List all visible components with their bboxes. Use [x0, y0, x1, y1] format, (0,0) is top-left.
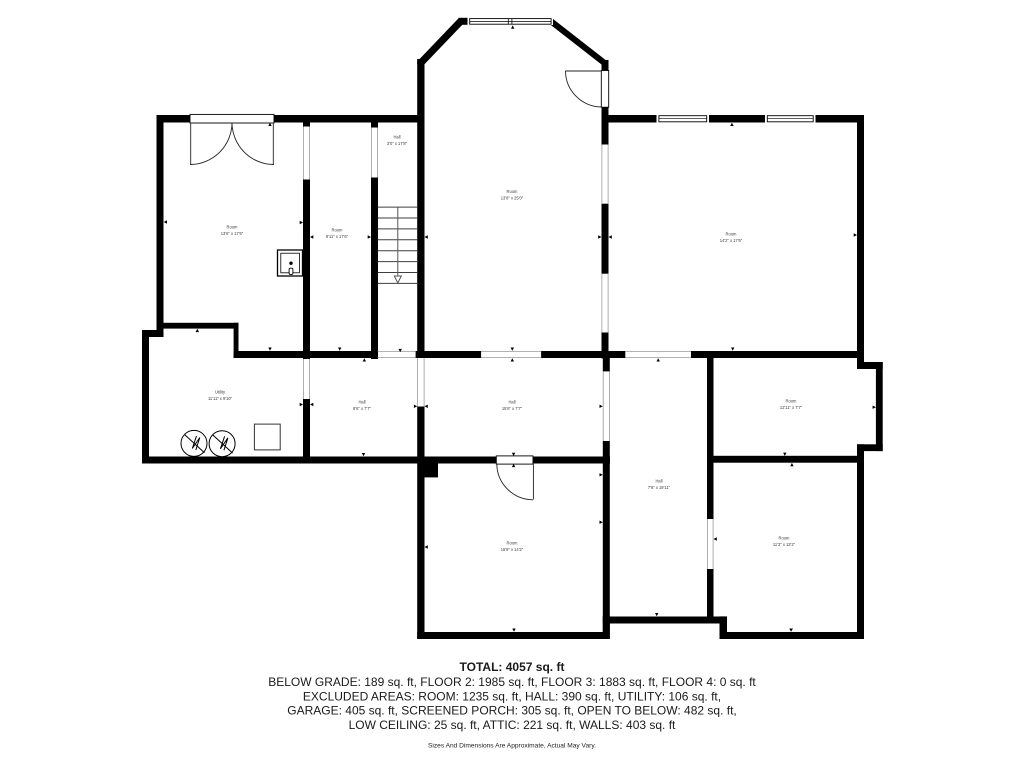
svg-text:13'6" x 17'6": 13'6" x 17'6" — [221, 231, 244, 236]
svg-text:3'0" x 17'8": 3'0" x 17'8" — [387, 141, 408, 146]
svg-text:Room: Room — [786, 399, 798, 404]
svg-text:Room: Room — [332, 228, 344, 233]
svg-text:13'8" x 25'0": 13'8" x 25'0" — [501, 196, 524, 201]
svg-text:LOW CEILING: 25 sq. ft, ATTIC:: LOW CEILING: 25 sq. ft, ATTIC: 221 sq. f… — [349, 718, 676, 732]
svg-text:8'11" x 17'6": 8'11" x 17'6" — [326, 234, 349, 239]
svg-text:Room: Room — [507, 541, 519, 546]
svg-text:Hall: Hall — [393, 135, 400, 140]
svg-text:7'8" x 19'11": 7'8" x 19'11" — [648, 485, 671, 490]
svg-text:15'9" x 14'2": 15'9" x 14'2" — [501, 547, 524, 552]
svg-text:12'11" x 7'7": 12'11" x 7'7" — [780, 405, 803, 410]
svg-text:Room: Room — [227, 225, 239, 230]
svg-text:EXCLUDED AREAS: ROOM: 1235 sq.: EXCLUDED AREAS: ROOM: 1235 sq. ft, HALL:… — [303, 690, 721, 704]
svg-text:Hall: Hall — [508, 400, 515, 405]
svg-text:TOTAL: 4057 sq. ft: TOTAL: 4057 sq. ft — [460, 660, 565, 674]
svg-text:BELOW GRADE: 189 sq. ft, FLOOR: BELOW GRADE: 189 sq. ft, FLOOR 2: 1985 s… — [268, 675, 756, 689]
svg-text:8'6" x 7'7": 8'6" x 7'7" — [353, 406, 371, 411]
svg-text:Room: Room — [507, 189, 519, 194]
svg-text:Hall: Hall — [655, 479, 662, 484]
svg-text:11'3" x 13'2": 11'3" x 13'2" — [773, 542, 796, 547]
svg-text:Room: Room — [726, 232, 738, 237]
svg-text:15'6" x 7'7": 15'6" x 7'7" — [502, 406, 523, 411]
svg-text:11'11" x 9'10": 11'11" x 9'10" — [208, 396, 233, 401]
svg-text:14'2" x 17'6": 14'2" x 17'6" — [720, 238, 743, 243]
svg-text:Sizes And Dimensions Are Appro: Sizes And Dimensions Are Approximate, Ac… — [428, 743, 596, 750]
svg-text:GARAGE: 405 sq. ft, SCREENED P: GARAGE: 405 sq. ft, SCREENED PORCH: 305 … — [287, 704, 737, 718]
svg-text:Utility: Utility — [215, 390, 226, 395]
svg-text:Room: Room — [779, 536, 791, 541]
svg-text:Hall: Hall — [358, 400, 365, 405]
